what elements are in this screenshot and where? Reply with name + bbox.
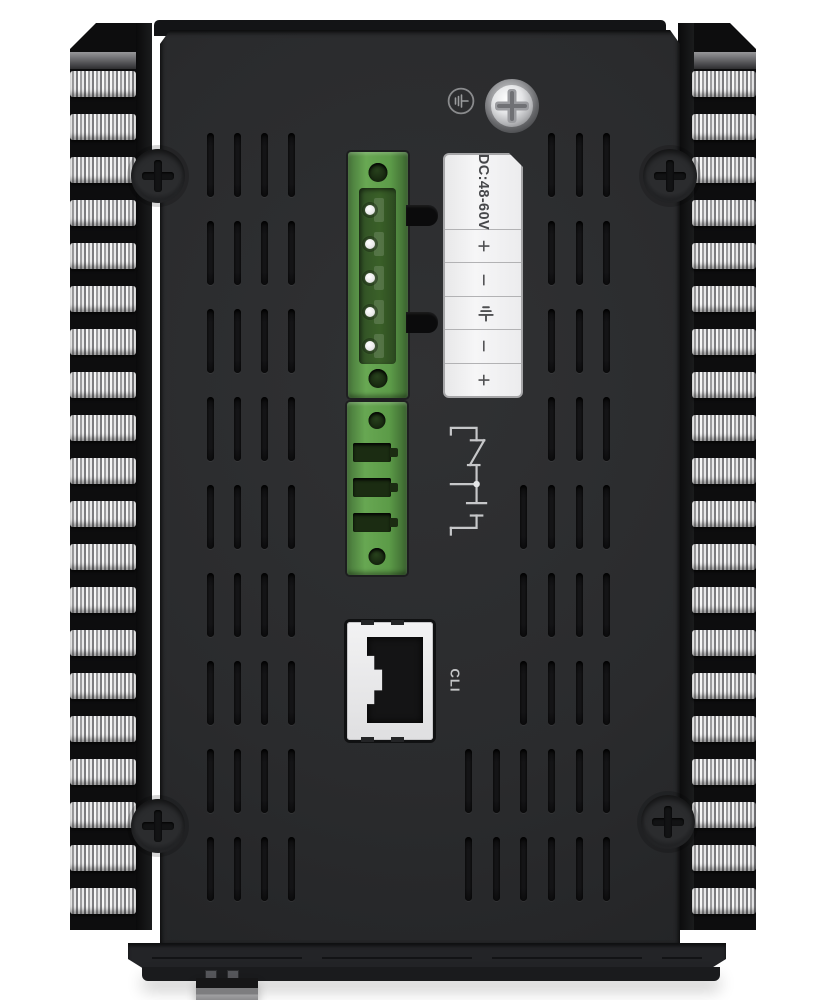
terminal-pin	[365, 341, 375, 351]
vent-slot	[234, 573, 241, 637]
heatsink-fin	[70, 501, 136, 527]
vent-slot	[288, 485, 295, 549]
terminal-pin	[365, 273, 375, 283]
vent-slot	[576, 309, 583, 373]
vent-slot	[576, 661, 583, 725]
vent-slot	[548, 573, 555, 637]
vent-slot	[261, 573, 268, 637]
heatsink-fin	[70, 329, 136, 355]
din-clip-body	[196, 978, 258, 1000]
console-rj45-port	[347, 622, 433, 740]
ground-screw	[484, 78, 540, 134]
heatsink-fin	[692, 243, 756, 269]
heatsink-fin	[692, 845, 756, 871]
vent-slot	[288, 133, 295, 197]
heatsink-fin	[692, 630, 756, 656]
vent-slot	[465, 837, 472, 901]
terminal-cell: −	[445, 262, 521, 295]
terminal-marking: −	[470, 273, 496, 286]
vent-slot	[548, 309, 555, 373]
vent-slot	[234, 221, 241, 285]
vent-slot	[576, 133, 583, 197]
terminal-pin	[365, 307, 375, 317]
connector-side-tab	[406, 312, 438, 333]
vent-slot	[548, 661, 555, 725]
vent-slot	[493, 837, 500, 901]
vent-slot	[548, 485, 555, 549]
vent-slot	[603, 749, 610, 813]
heatsink-fin	[692, 458, 756, 484]
heatsink-fin	[692, 200, 756, 226]
vent-slot	[603, 221, 610, 285]
heatsink-fin	[70, 845, 136, 871]
vent-slot	[576, 485, 583, 549]
pin-receptacle	[374, 300, 384, 324]
vent-slot	[520, 837, 527, 901]
vent-slot	[520, 661, 527, 725]
vent-slot	[207, 397, 214, 461]
vent-slot	[207, 309, 214, 373]
vent-slot	[288, 221, 295, 285]
vent-slot	[234, 837, 241, 901]
heatsink-fin	[692, 802, 756, 828]
heatsink-fin	[692, 759, 756, 785]
vent-slot	[288, 573, 295, 637]
vent-slot	[261, 837, 268, 901]
power-rating-title-cell: DC:48-60V	[445, 155, 521, 229]
pin-receptacle	[374, 232, 384, 256]
vent-slot	[603, 133, 610, 197]
heatsink-fin	[70, 71, 136, 97]
heatsink-fin	[692, 286, 756, 312]
vent-slot	[234, 309, 241, 373]
corner-screw-bottom-right	[641, 795, 695, 849]
vent-slot	[576, 221, 583, 285]
earth-ground-icon	[447, 87, 475, 115]
corner-screw-top-left	[131, 149, 185, 203]
vent-slot	[576, 573, 583, 637]
cli-text: CLI	[447, 668, 462, 692]
terminal-cell: +	[445, 363, 521, 396]
heatsink-fin	[70, 286, 136, 312]
heatsink-fin	[70, 114, 136, 140]
vent-slot	[234, 661, 241, 725]
vent-slot	[603, 397, 610, 461]
terminal-marking: +	[470, 240, 496, 253]
vent-slot	[603, 837, 610, 901]
heatsink-fin	[692, 888, 756, 914]
vent-slot	[465, 749, 472, 813]
heatsink-fin	[70, 243, 136, 269]
heatsink-fin	[70, 802, 136, 828]
industrial-device-top-panel: DC:48-60V +−−+	[58, 20, 762, 1000]
vent-slot	[288, 397, 295, 461]
connector-screw-hole	[369, 369, 388, 388]
heatsink-fin	[692, 587, 756, 613]
relay-contact-slot	[353, 513, 391, 532]
vent-slot	[548, 221, 555, 285]
heatsink-fin	[70, 458, 136, 484]
vent-slot	[207, 661, 214, 725]
pin-receptacle	[374, 334, 384, 358]
vent-slot	[576, 837, 583, 901]
vent-slot	[603, 309, 610, 373]
relay-contact-slot	[353, 478, 391, 497]
heatsink-fin	[70, 888, 136, 914]
vent-slot	[234, 749, 241, 813]
power-rating-label: DC:48-60V +−−+	[443, 153, 523, 398]
vent-slot	[576, 397, 583, 461]
vent-slot	[261, 133, 268, 197]
vent-slot	[261, 749, 268, 813]
heatsink-fin	[70, 157, 136, 183]
vent-slot	[520, 573, 527, 637]
vent-slot	[207, 837, 214, 901]
heatsink-bevel	[70, 52, 136, 69]
vent-slot	[207, 133, 214, 197]
vent-slot	[207, 573, 214, 637]
vent-slot	[603, 661, 610, 725]
pin-receptacle	[374, 198, 384, 222]
heatsink-fin	[70, 673, 136, 699]
vent-slot	[548, 749, 555, 813]
relay-contact-slot	[353, 443, 391, 462]
connector-screw-hole	[369, 548, 386, 565]
vent-slot	[493, 749, 500, 813]
vent-slot	[548, 133, 555, 197]
vent-slot	[234, 485, 241, 549]
heatsink-fin	[70, 544, 136, 570]
heatsink-fin	[692, 716, 756, 742]
heatsink-fin	[70, 587, 136, 613]
corner-screw-top-right	[643, 149, 697, 203]
vent-slot	[261, 221, 268, 285]
vent-slot	[261, 485, 268, 549]
terminal-pin	[365, 205, 375, 215]
heatsink-fin	[692, 157, 756, 183]
vent-slot	[520, 749, 527, 813]
terminal-cell-earth	[445, 296, 521, 329]
heatsink-fin	[692, 501, 756, 527]
vent-slot	[520, 485, 527, 549]
pin-receptacle	[374, 266, 384, 290]
earth-ground-icon	[474, 302, 497, 325]
relay-terminal-connector	[347, 402, 407, 575]
vent-slot	[234, 133, 241, 197]
terminal-marking: +	[470, 373, 496, 386]
heatsink-fin	[692, 673, 756, 699]
connector-screw-hole	[369, 412, 386, 429]
heatsink-fin	[70, 372, 136, 398]
vent-slot	[261, 661, 268, 725]
heatsink-fin	[692, 329, 756, 355]
connector-side-tab	[406, 205, 438, 226]
heatsink-fin	[70, 759, 136, 785]
heatsink-fin	[692, 372, 756, 398]
power-terminal-connector	[348, 152, 408, 398]
vent-slot	[207, 221, 214, 285]
heatsink-fin	[692, 71, 756, 97]
vent-slot	[288, 837, 295, 901]
vent-slot	[576, 749, 583, 813]
vent-slot	[261, 397, 268, 461]
terminal-marking: −	[470, 340, 496, 353]
vent-slot	[234, 397, 241, 461]
console-port-label: CLI	[438, 664, 472, 696]
vent-slot	[207, 749, 214, 813]
heatsink-fin	[70, 716, 136, 742]
vent-slot	[603, 485, 610, 549]
heatsink-fin	[70, 630, 136, 656]
terminal-cell: −	[445, 329, 521, 362]
heatsink-fin	[70, 415, 136, 441]
power-rating-text: DC:48-60V	[475, 154, 491, 230]
heatsink-fin	[692, 114, 756, 140]
rj45-jack-opening	[367, 637, 423, 723]
heatsink-bevel	[692, 52, 756, 69]
vent-slot	[603, 573, 610, 637]
vent-slot	[548, 837, 555, 901]
product-photo: DC:48-60V +−−+	[0, 0, 820, 1000]
connector-screw-hole	[369, 163, 388, 182]
terminal-pin	[365, 239, 375, 249]
vent-slot	[288, 661, 295, 725]
relay-contacts-diagram	[448, 420, 488, 552]
vent-slot	[288, 309, 295, 373]
bottom-edge-step	[128, 943, 726, 969]
heatsink-fin	[692, 415, 756, 441]
corner-screw-bottom-left	[131, 799, 185, 853]
heatsink-fin	[692, 544, 756, 570]
terminal-cell: +	[445, 229, 521, 262]
vent-slot	[288, 749, 295, 813]
front-panel: DC:48-60V +−−+	[160, 30, 680, 945]
heatsink-fin	[70, 200, 136, 226]
vent-slot	[207, 485, 214, 549]
din-rail-clip	[196, 970, 258, 1000]
vent-slot	[548, 397, 555, 461]
vent-slot	[261, 309, 268, 373]
